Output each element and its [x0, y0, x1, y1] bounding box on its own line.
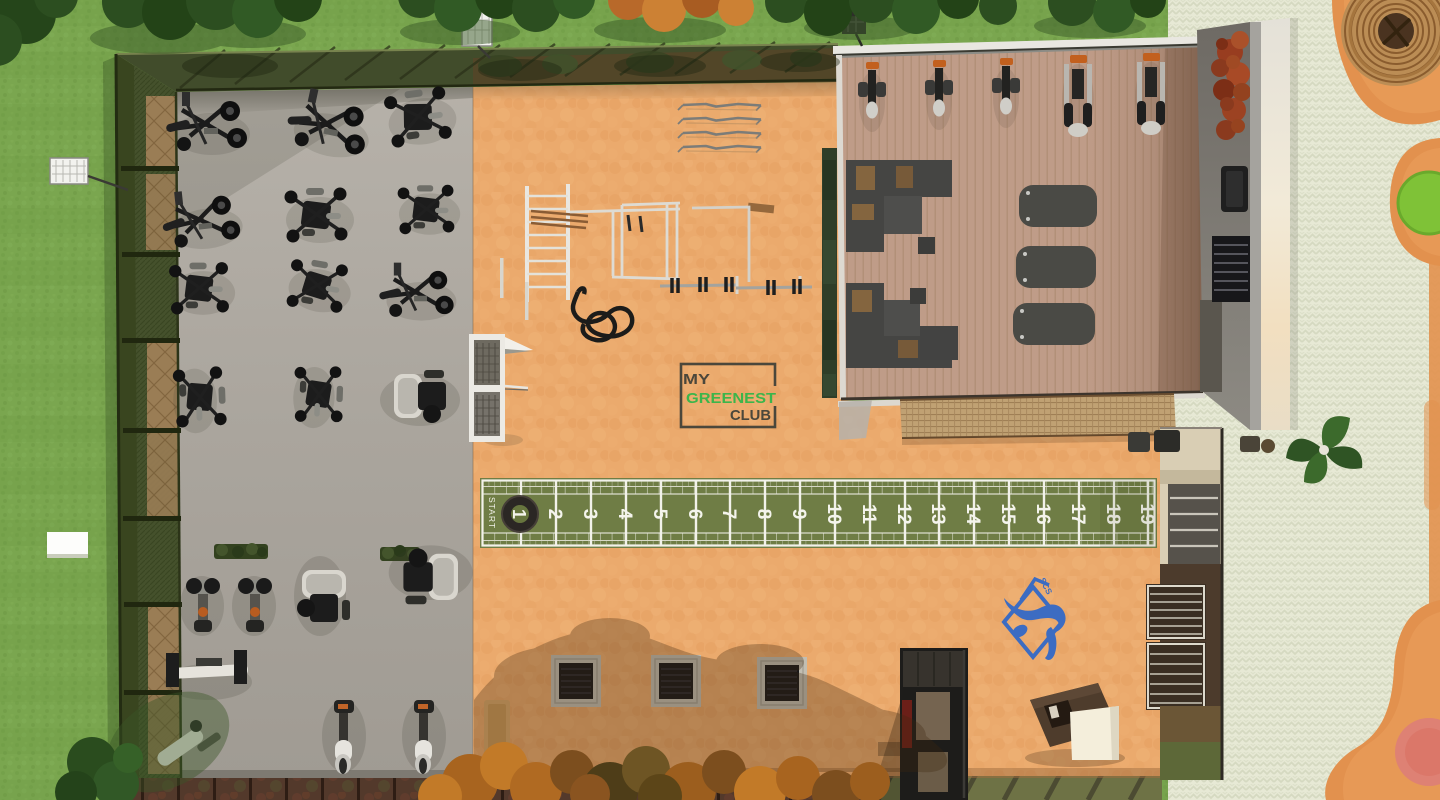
svg-text:5: 5	[649, 509, 670, 520]
svg-text:6: 6	[684, 509, 705, 520]
svg-text:13: 13	[927, 503, 948, 524]
svg-text:9: 9	[788, 509, 809, 520]
svg-text:CLUB: CLUB	[730, 407, 771, 424]
svg-text:16: 16	[1032, 503, 1053, 524]
svg-text:8: 8	[753, 509, 774, 520]
svg-text:7: 7	[718, 509, 739, 520]
svg-text:MY: MY	[683, 371, 710, 388]
svg-text:12: 12	[893, 503, 914, 524]
svg-text:10: 10	[823, 503, 844, 524]
svg-text:4: 4	[614, 509, 635, 520]
svg-text:GREENEST: GREENEST	[686, 390, 776, 407]
svg-text:15: 15	[997, 503, 1018, 525]
svg-text:START: START	[487, 497, 497, 529]
svg-text:2: 2	[544, 509, 565, 520]
svg-text:3: 3	[579, 509, 600, 520]
svg-text:1: 1	[509, 509, 529, 519]
svg-text:14: 14	[962, 503, 983, 525]
svg-text:11: 11	[858, 504, 879, 525]
svg-text:17: 17	[1067, 503, 1088, 524]
